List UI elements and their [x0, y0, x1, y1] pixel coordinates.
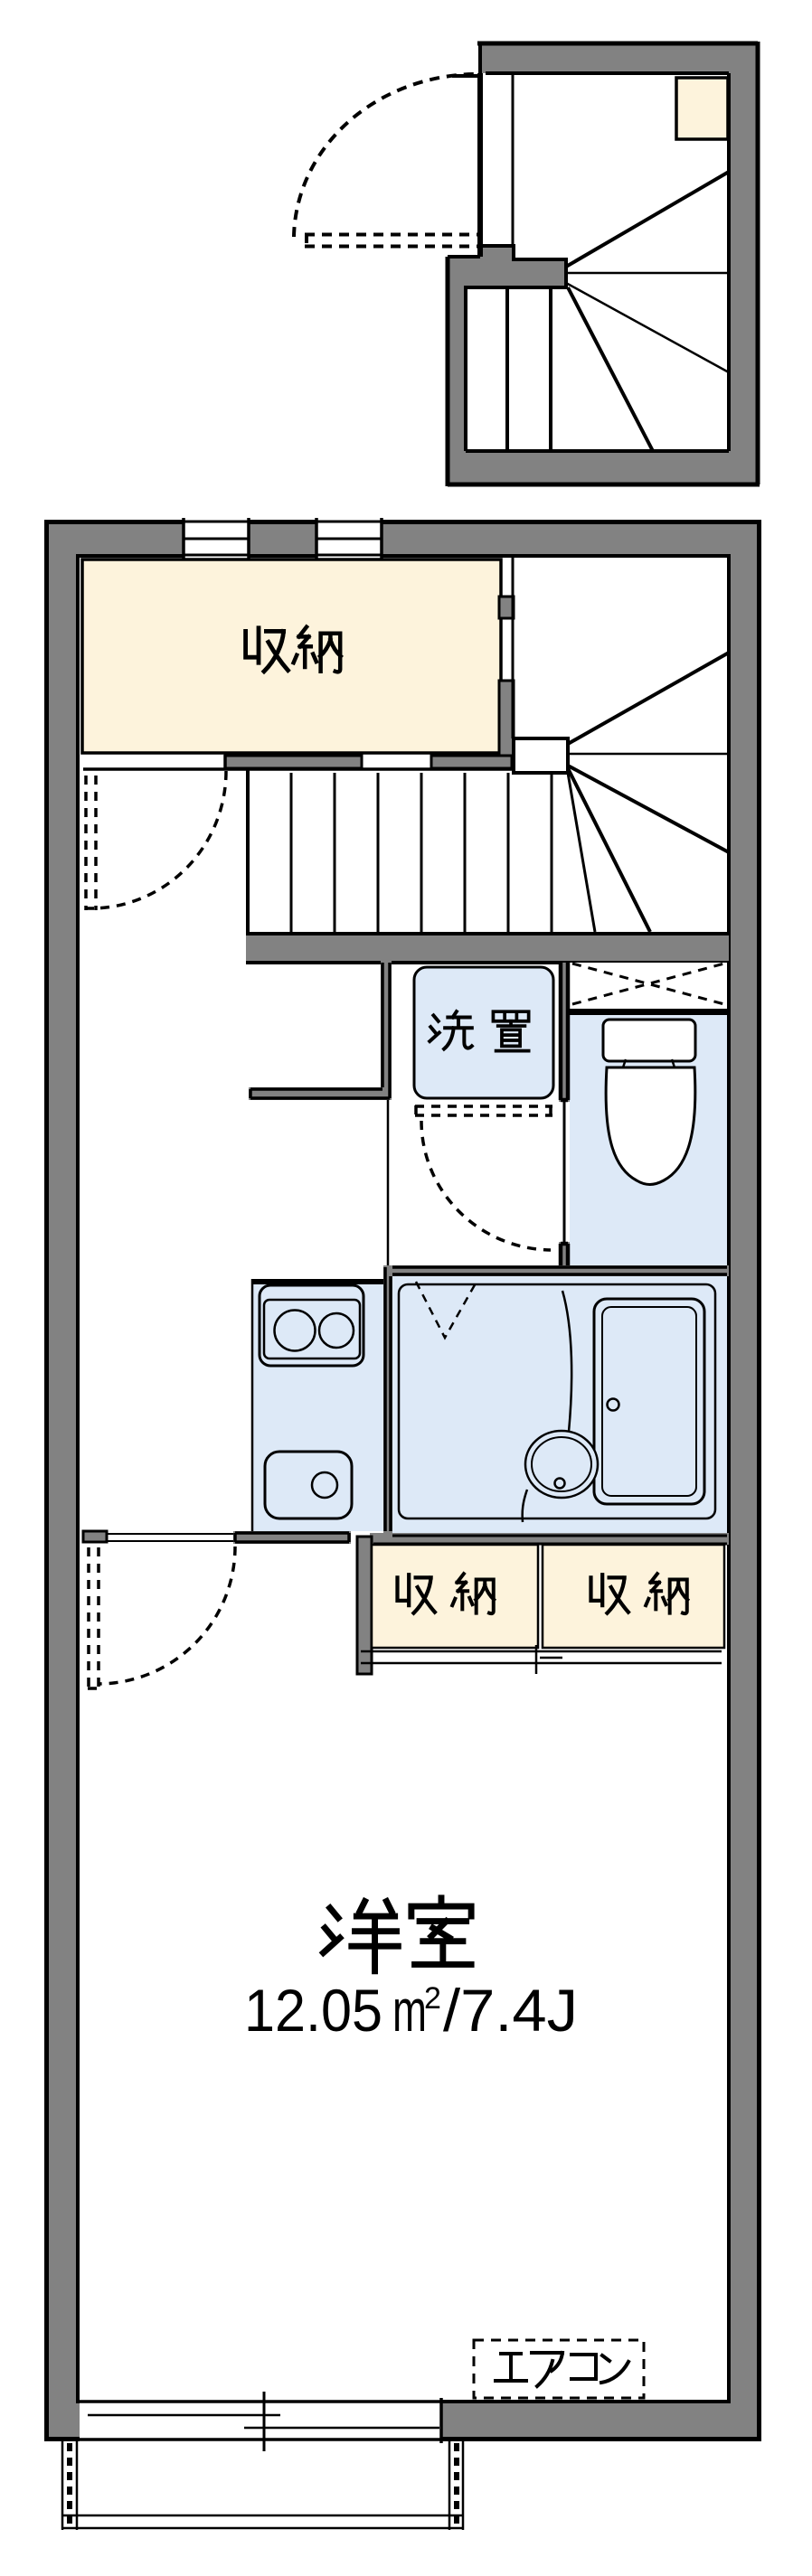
svg-text:m: m	[392, 1977, 427, 2044]
svg-text:2: 2	[424, 1981, 441, 2016]
svg-text:12.05: 12.05	[244, 1977, 382, 2044]
svg-text:/7.4J: /7.4J	[443, 1977, 578, 2044]
